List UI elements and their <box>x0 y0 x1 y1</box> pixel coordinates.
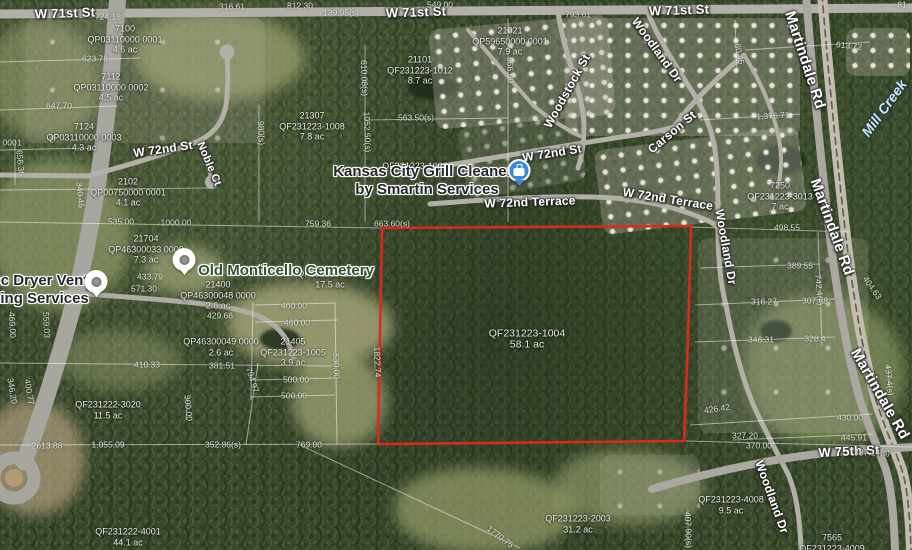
measurement-label: 666.60 <box>505 57 515 83</box>
measurement-label: 316.61 <box>219 3 245 12</box>
parcel-label: QF231223-40089.5 ac <box>698 495 764 516</box>
parcel-label-line: QF231223-1005 <box>260 347 326 358</box>
parcel-label-line: 31.2 ac <box>545 524 611 535</box>
measurement-label: 80.45 <box>732 43 745 66</box>
water-label: Mill Creek <box>858 77 910 140</box>
parcel-label-line: 7112 <box>74 71 149 82</box>
parcel-label-line: 44.1 ac <box>95 537 161 548</box>
measurement-label: 2613.88 <box>32 442 63 451</box>
parcel-label-line: 8.7 ac <box>387 75 453 86</box>
measurement-label: 327.20 <box>732 432 758 441</box>
parcel-label-line: QP03110000 0003 <box>47 132 122 143</box>
kansas-city-grill-cleaners-pin[interactable] <box>508 159 531 191</box>
measurement-label: 571.30 <box>131 285 157 294</box>
parcel-label: 21021QP59650000 00017.9 ac <box>472 25 548 57</box>
measurement-label: 769.00 <box>296 441 322 450</box>
parcel-label-line: 58.1 ac <box>489 339 565 350</box>
parcel-label: 21307QF231223-10087.8 ac <box>279 110 345 142</box>
parcel-label: 21400QP46300048 00002.6 ac <box>180 279 256 311</box>
measurement-label: 563.50(s) <box>398 114 434 123</box>
parcel-label-line: QP59650000 0001 <box>472 36 548 47</box>
parcel-label-line: 4.3 ac <box>47 142 122 153</box>
parcel-label-line: 9.5 ac <box>698 505 764 516</box>
parcel-label: QF231223-200331.2 ac <box>545 514 611 535</box>
street-label: Woodland Dr <box>712 208 739 286</box>
street-label: Noble Ct <box>194 140 223 188</box>
measurement-label: 469.00 <box>7 312 17 338</box>
parcel-label: QP46300049 00002.6 ac <box>183 337 259 358</box>
poi-label-old-monticello-cemetery[interactable]: Old Monticello Cemetery <box>198 262 374 280</box>
measurement-label: 407.90(s) <box>683 512 693 548</box>
pin-tail <box>514 180 524 191</box>
street-label: W 72nd St <box>521 141 582 164</box>
measurement-label: 445.91 <box>841 434 867 443</box>
measurement-label: 656.36 <box>14 150 25 177</box>
measurement-label: 381.51 <box>209 362 235 371</box>
parcel-label-line: 7 ac <box>747 201 813 212</box>
parcel-label-line: QF231222-3020 <box>75 400 141 411</box>
parcel-label-line: 21101 <box>387 54 453 65</box>
pin-circle <box>173 248 196 271</box>
poi-label-kansas-city-grill-cleaners[interactable]: Kansas City Grill Cleanersby Smartin Ser… <box>333 163 521 199</box>
street-label: Martindale Rd <box>781 9 829 111</box>
parcel-label-line: 2.6 ac <box>183 347 259 358</box>
parcel-label-line: QP46300049 0000 <box>183 337 259 348</box>
measurement-label: 437.4(s) <box>883 364 895 396</box>
measurement-label: 370.00 <box>746 442 772 451</box>
parcel-label-line: QP00750000 0001 <box>90 187 166 198</box>
parcel-label-line: 3.9 ac <box>260 357 326 368</box>
street-label: Woodland Dr <box>629 15 685 85</box>
measurement-label: 1822.74 <box>372 346 382 377</box>
measurement-label: 794.97 <box>244 366 261 394</box>
parcel-label-line: 2.6 ac <box>180 300 256 311</box>
parcel-label-line: QF231223-1008 <box>279 121 345 132</box>
measurement-label: 1,376.71 <box>756 111 790 122</box>
measurement-label: 404.63 <box>861 275 883 301</box>
parcel-label-line: QF231223-1004 <box>489 329 565 340</box>
measurement-label: 498.55 <box>774 224 800 233</box>
measurement-label: 340.45 <box>74 182 85 209</box>
parcel-label-line: QP03110000 0002 <box>74 82 149 93</box>
street-label: Martindale Rd <box>847 346 912 443</box>
pin-circle <box>508 159 531 182</box>
parcel-label-line: 17.5 ac <box>297 279 363 290</box>
briefcase-icon <box>514 168 525 176</box>
measurement-label: 316.27 <box>751 298 777 307</box>
measurement-label: 389.55 <box>787 262 813 271</box>
cemetery-icon <box>179 255 189 265</box>
measurement-label: 300.00 <box>182 395 193 422</box>
measurement-label: 410.33 <box>134 361 160 370</box>
services-icon <box>91 277 101 287</box>
parcel-label-line: QP03110000 0001 <box>88 34 163 45</box>
parcel-label-line: 11.5 ac <box>75 410 141 421</box>
measurement-label: 1770.75 <box>485 524 515 550</box>
measurement-label: 346.31 <box>748 336 774 345</box>
street-label: W 72nd St <box>132 138 193 160</box>
parcel-label-line: 2102 <box>90 176 166 187</box>
measurement-label: 623.78 <box>82 55 108 64</box>
parcel-label-line: 4.5 ac <box>74 92 149 103</box>
poi-label-line: Old Monticello Cemetery <box>198 262 374 280</box>
street-label: Woodstock St <box>541 52 593 131</box>
measurement-label: 352.86(s) <box>205 441 241 450</box>
pin-circle <box>85 270 108 293</box>
measurement-label: 559.03 <box>41 312 51 338</box>
measurement-label: 460.00 <box>284 319 310 328</box>
pin-tail <box>91 291 101 302</box>
measurement-label: 500.00 <box>283 376 309 385</box>
parcel-label-line: QF231223-4008 <box>698 495 764 506</box>
measurement-label: 426.42 <box>704 403 731 416</box>
parcel-label-line: 21704 <box>108 233 184 244</box>
street-label: Martindale Rd <box>807 176 858 277</box>
measurement-label: 793.61 <box>565 11 591 20</box>
measurement-label: 400.77 <box>22 378 35 405</box>
parcel-label: 21101QF231223-10128.7 ac <box>387 54 453 86</box>
parcel-label-line: 7.9 ac <box>472 46 548 57</box>
parcel-label-line: 21405 <box>260 336 326 347</box>
measurement-label: 500.00 <box>281 392 307 401</box>
measurement-label: 530.00 <box>331 353 341 379</box>
measurement-label: 430.00 <box>837 414 863 423</box>
poi-label-line: oc Dryer Vent <box>0 272 89 290</box>
parcel-label: QF231222-400144.1 ac <box>95 527 161 548</box>
parcel-label-line: QF231223-2003 <box>545 514 611 525</box>
measurement-label: 1,055.09 <box>91 441 124 450</box>
parcel-label-line: 7565 <box>799 533 865 544</box>
measurement-label: 980(s) <box>256 121 266 146</box>
parcel-label-line: 4.1 ac <box>90 197 166 208</box>
measurement-label: 812.30 <box>287 2 313 11</box>
parcel-label-line: QP46300048 0000 <box>180 290 256 301</box>
parcel-label: 7112QP03110000 00024.5 ac <box>74 71 149 103</box>
measurement-label: 647.70 <box>46 102 72 111</box>
satellite-map[interactable]: W 71st StW 71st StW 71st StW 72nd StW 72… <box>0 0 912 550</box>
measurement-label: 460.00 <box>281 302 307 311</box>
measurement-label: 328.4 <box>804 335 825 344</box>
measurement-label: 346.20 <box>5 377 18 404</box>
parcel-label-line: 7100 <box>88 23 163 34</box>
parcel-label: 21405QF231223-10053.9 ac <box>260 336 326 368</box>
measurement-label: 81 <box>897 1 906 10</box>
measurement-label: 549.00 <box>427 1 453 10</box>
street-label: W 72nd Terrace <box>622 185 714 213</box>
labels-layer: W 71st StW 71st StW 71st StW 72nd StW 72… <box>0 0 912 550</box>
parcel-label-line: 21021 <box>472 25 548 36</box>
poi-label-line: Kansas City Grill Cleaners <box>333 163 521 181</box>
measurement-label: 0001 <box>3 139 22 148</box>
parcel-label: QF231222-302011.5 ac <box>75 400 141 421</box>
parcel-label: 7565QF231223-4009 <box>799 533 865 550</box>
parcel-label: 7124QP03110000 00034.3 ac <box>47 121 122 153</box>
parcel-label: 7100QP03110000 00014.6 ac <box>88 23 163 55</box>
measurement-label: 433.79 <box>137 273 163 282</box>
parcel-label: 2102QP00750000 00014.1 ac <box>90 176 166 208</box>
street-label: W 71st St <box>35 4 96 21</box>
parcel-label: QF231223-100458.1 ac <box>489 329 565 350</box>
measurement-label: 139.95(s) <box>323 9 359 18</box>
measurement-label: 1000.00 <box>161 219 192 228</box>
parcel-label-line: 21400 <box>180 279 256 290</box>
pin-tail <box>179 269 189 280</box>
measurement-label: 613.72 <box>836 40 863 52</box>
parcel-label: 7250QF231223-30137 ac <box>747 180 813 212</box>
measurement-label: 429.66 <box>207 312 233 321</box>
parcel-label-line: QF231222-4001 <box>95 527 161 538</box>
measurement-label: 724.18 <box>95 13 121 22</box>
parcel-label-line: QF231223-4009 <box>799 543 865 550</box>
dryer-vent-cleaning-services-pin[interactable] <box>85 270 108 302</box>
measurement-label: 535.00 <box>108 218 134 227</box>
measurement-label: 387.14(s) <box>854 449 890 458</box>
parcel-label-line: 7250 <box>747 180 813 191</box>
measurement-label: 759.36 <box>305 220 331 229</box>
measurement-label: 663.60(s) <box>374 220 410 229</box>
poi-label-line: ning Services <box>0 290 89 308</box>
parcel-label-line: 7124 <box>47 121 122 132</box>
poi-label-line: by Smartin Services <box>333 181 521 199</box>
poi-label-dryer-vent-cleaning-services[interactable]: oc Dryer Ventning Services <box>0 272 89 308</box>
measurement-label: 610.08(s) <box>359 60 369 96</box>
parcel-label-line: 21307 <box>279 110 345 121</box>
old-monticello-cemetery-pin[interactable] <box>173 248 196 280</box>
measurement-label: 1052.50(s) <box>362 112 372 153</box>
measurement-label: 307.68 <box>802 297 828 306</box>
street-label: Carson St <box>645 108 699 156</box>
parcel-label-line: 7.8 ac <box>279 131 345 142</box>
parcel-label-line: QF231223-3013 <box>747 191 813 202</box>
parcel-label-line: QF231223-1012 <box>387 65 453 76</box>
street-label: W 71st St <box>649 1 710 18</box>
